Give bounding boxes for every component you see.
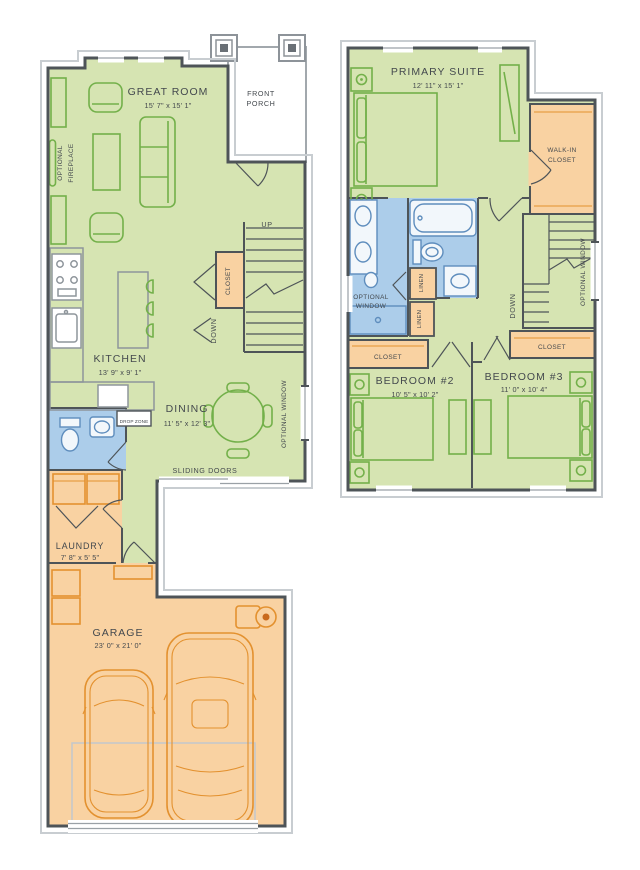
bedroom2-dims: 10' 5" x 10' 2" [391,390,438,399]
dining-dims: 11' 5" x 12' 3" [164,419,211,428]
stairs-down-label: DOWN [209,318,218,343]
primary-suite-label: PRIMARY SUITE [391,66,485,78]
laundry-dims: 7' 8" x 5' 5" [61,553,100,562]
front-porch-label: PORCH [247,99,276,108]
double-vanity [350,200,377,274]
powder-room-area [48,408,126,470]
great-room-dims: 15' 7" x 15' 1" [144,101,191,110]
primary-suite-dims: 12' 11" x 15' 1" [413,81,464,90]
bedroom3-label: BEDROOM #3 [485,371,564,383]
first-floor-plan: GREAT ROOM 15' 7" x 15' 1" FRONT PORCH O… [41,35,312,833]
second-floor-plan: PRIMARY SUITE 12' 11" x 15' 1" WALK-IN C… [341,41,602,497]
sliding-doors [159,477,289,486]
garage-dims: 23' 0" x 21' 0" [94,641,141,650]
stairs-down-label: DOWN [508,293,517,318]
toilet-icon [365,273,378,288]
walk-in-closet-label: CLOSET [548,157,576,164]
porch-column-icon [211,35,237,61]
optional-fireplace-label: FIREPLACE [68,143,75,182]
drop-zone-label: DROP ZONE [120,419,149,424]
linen-label: LINEN [417,310,423,329]
window [591,242,600,300]
garage-label: GARAGE [93,627,144,639]
sink-icon [444,266,476,296]
kitchen-sink-icon [52,308,81,348]
optional-fireplace-label: OPTIONAL [57,145,64,181]
dishwasher-icon [98,385,128,407]
front-porch-label: FRONT [247,89,275,98]
sliding-doors-label: SLIDING DOORS [173,466,238,475]
walk-in-closet-label: WALK-IN [547,147,576,154]
optional-window-label: WINDOW [356,303,387,310]
laundry-label: LAUNDRY [56,541,104,551]
sink-icon [90,417,114,437]
optional-window-side-label: OPTIONAL WINDOW [580,237,587,305]
window [344,276,353,312]
optional-window-label: OPTIONAL [353,294,389,301]
closet-label: CLOSET [538,344,566,351]
kitchen-label: KITCHEN [93,353,146,365]
linen-label: LINEN [419,274,425,293]
stairs-up-label: UP [261,220,272,229]
closet-label: CLOSET [225,267,232,295]
kitchen-dims: 13' 9" x 9' 1" [99,368,142,377]
porch-column-icon [279,35,305,61]
bedroom3-dims: 11' 0" x 10' 4" [501,385,548,394]
bathtub-icon [410,200,476,236]
window [301,386,310,440]
toilet-icon [60,418,80,451]
bedroom2-label: BEDROOM #2 [376,375,455,387]
dining-label: DINING [166,403,209,415]
stove-icon [52,254,81,300]
optional-window-label: OPTIONAL WINDOW [281,379,288,447]
floor-plan: GREAT ROOM 15' 7" x 15' 1" FRONT PORCH O… [0,0,640,870]
garage-door [68,820,258,833]
closet-label: CLOSET [374,354,402,361]
great-room-label: GREAT ROOM [128,86,209,98]
floor-plan-canvas: GREAT ROOM 15' 7" x 15' 1" FRONT PORCH O… [0,0,640,870]
